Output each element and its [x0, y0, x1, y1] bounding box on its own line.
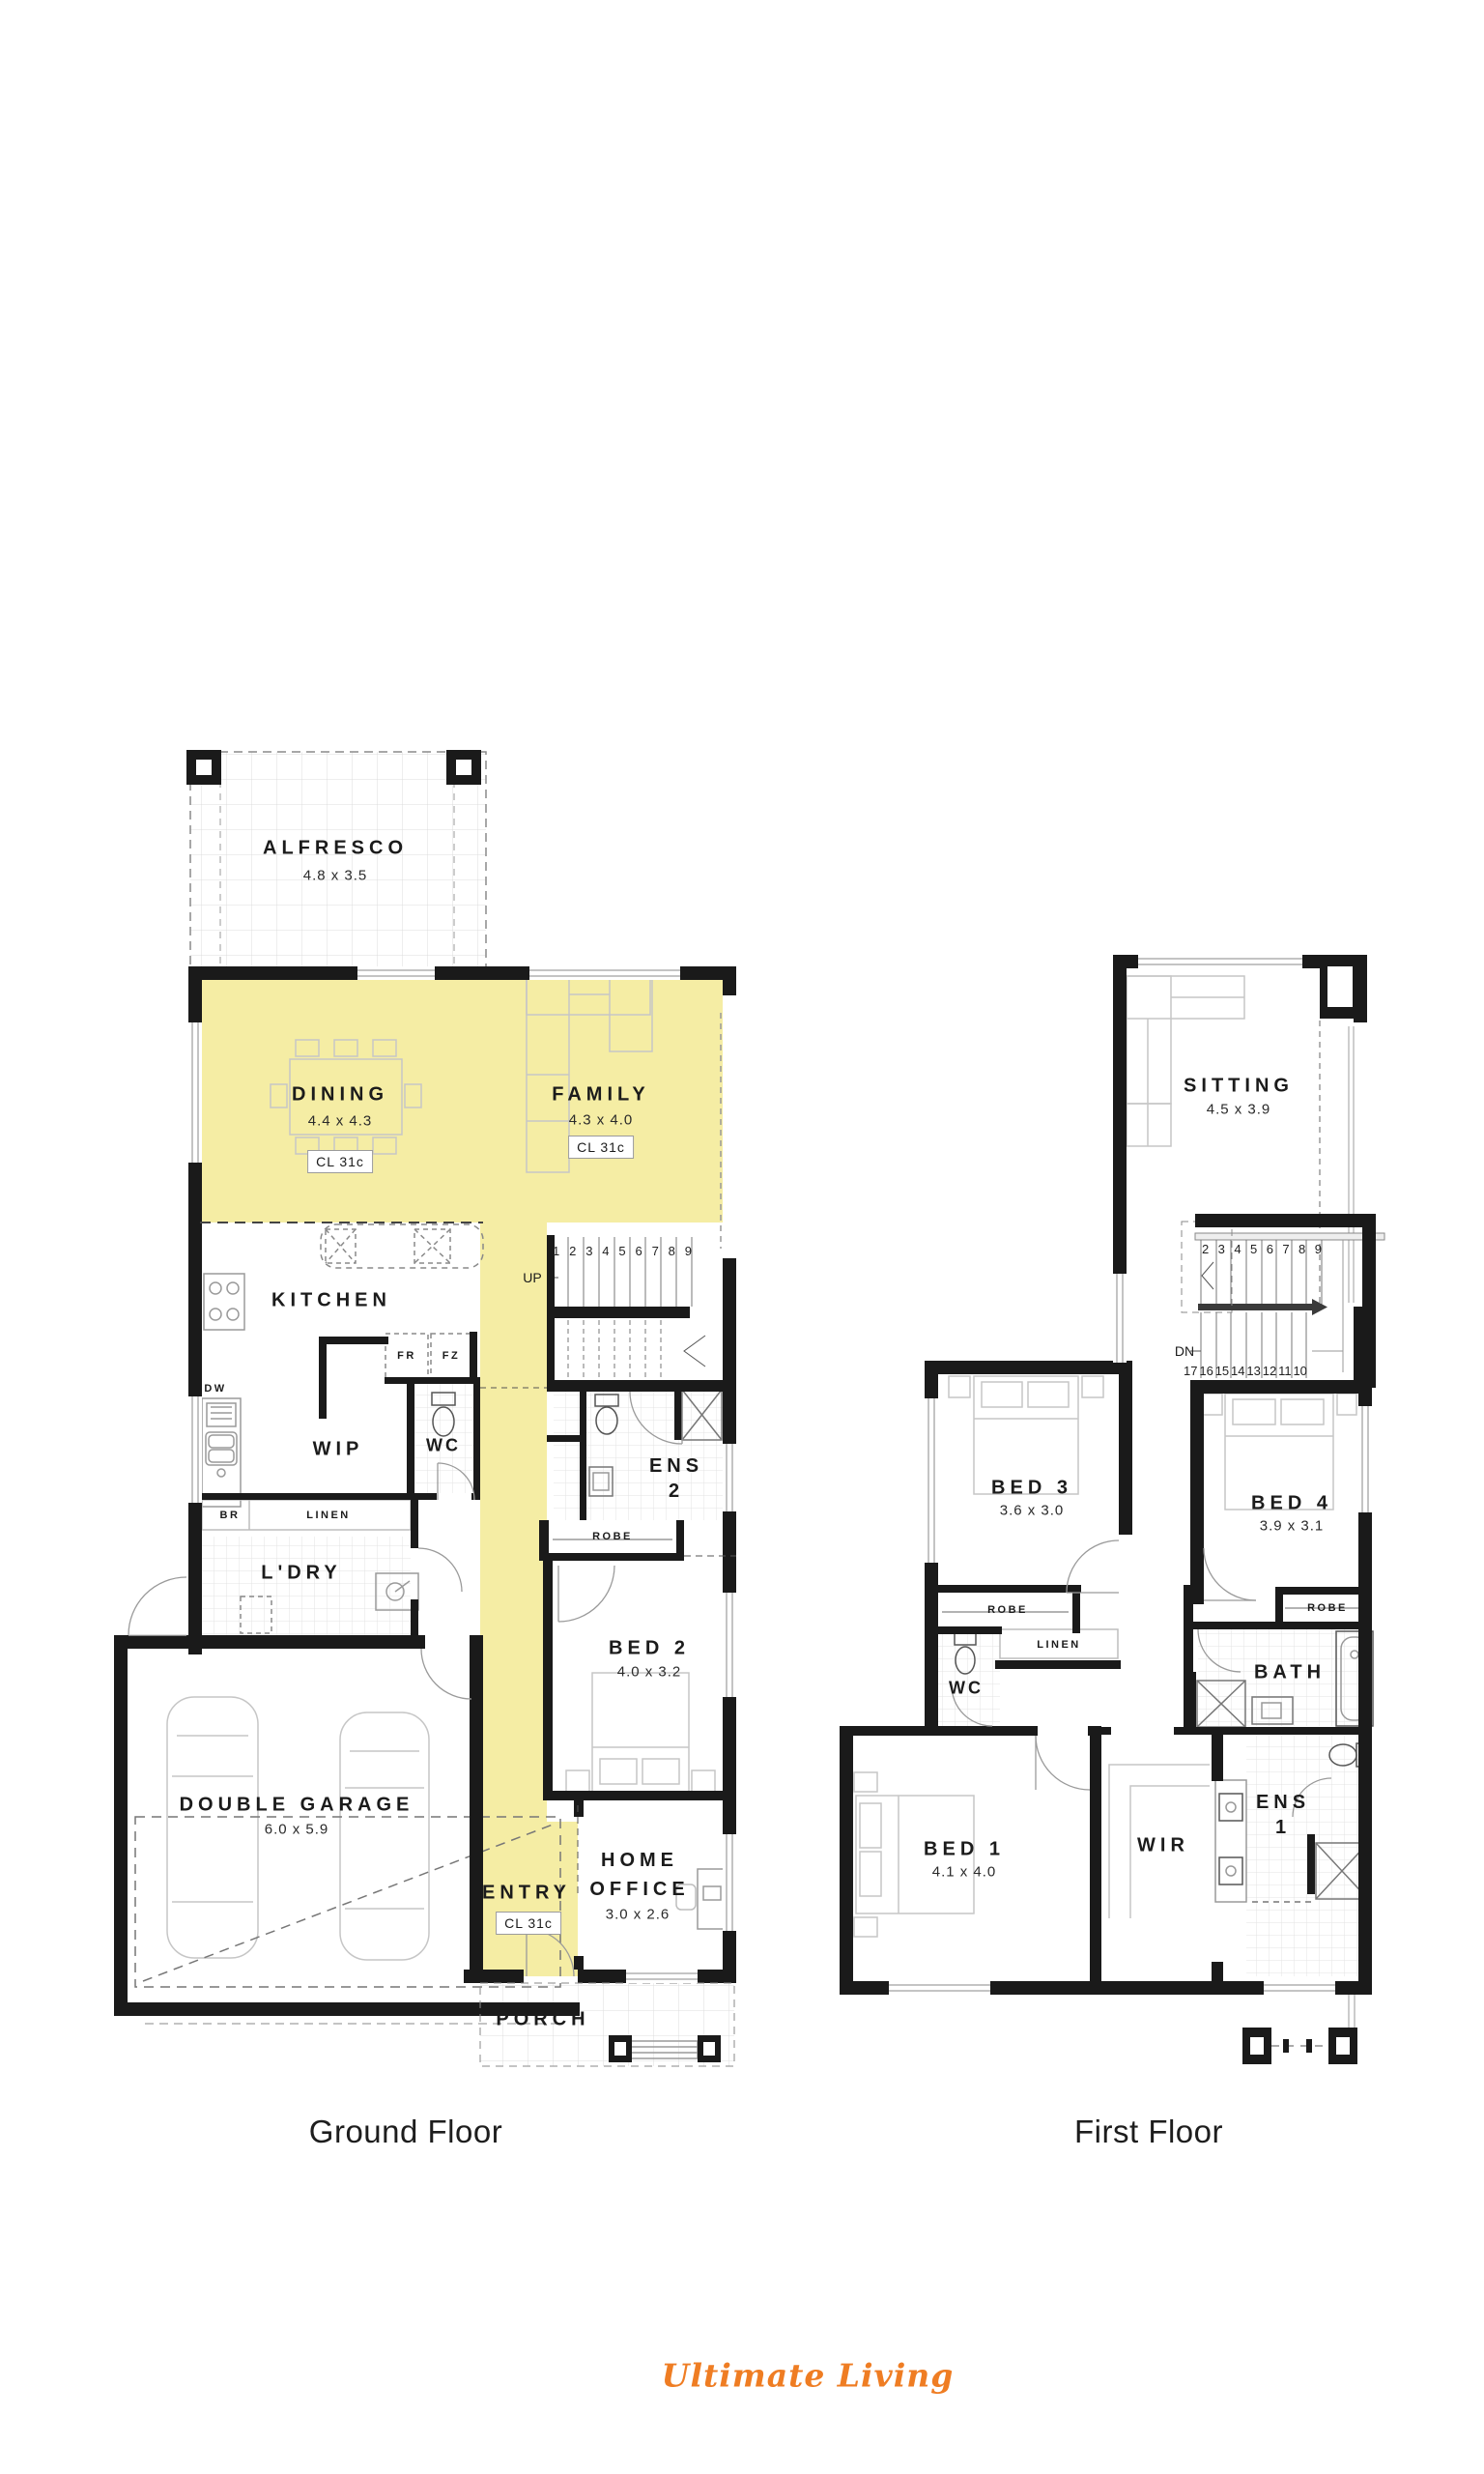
room-label-bed3: BED 3 [991, 1478, 1072, 1500]
room-dims-bed3: 3.6 x 3.0 [1000, 1503, 1065, 1519]
stairs-numbers-first-top: 2 3 4 5 6 7 8 9 [1202, 1242, 1322, 1256]
floorplan-page: ALFRESCO 4.8 x 3.5 DINING 4.4 x 4.3 CL 3… [0, 0, 1484, 2474]
room-dims-bed2: 4.0 x 3.2 [617, 1664, 682, 1681]
room-dims-bed1: 4.1 x 4.0 [932, 1864, 997, 1881]
ceiling-badge-entry: CL 31c [496, 1912, 561, 1935]
stairs-up-label: UP [523, 1270, 541, 1285]
stairs-numbers-ground: 1 2 3 4 5 6 7 8 9 [553, 1244, 692, 1258]
room-label-ens1: ENS 1 [1256, 1790, 1310, 1840]
ceiling-badge-family: CL 31c [568, 1136, 634, 1159]
fixture-label-fr: FR [397, 1350, 416, 1362]
room-label-sitting: SITTING [1184, 1076, 1294, 1098]
fixture-label-linen-ground: LINEN [306, 1510, 351, 1521]
room-dims-bed4: 3.9 x 3.1 [1260, 1518, 1325, 1535]
room-label-wir: WIR [1137, 1835, 1189, 1857]
fixture-label-robe-bed4: ROBE [1307, 1602, 1348, 1614]
fixture-label-robe-bed3: ROBE [987, 1604, 1028, 1616]
room-label-family: FAMILY [552, 1084, 650, 1107]
room-dims-home-office: 3.0 x 2.6 [606, 1907, 671, 1923]
room-label-wip: WIP [313, 1439, 364, 1461]
room-label-wc-ground: WC [426, 1436, 461, 1456]
ground-floor-caption: Ground Floor [309, 2114, 502, 2150]
room-dims-family: 4.3 x 4.0 [569, 1112, 634, 1129]
fixture-label-br: BR [220, 1510, 241, 1521]
ceiling-badge-dining: CL 31c [307, 1150, 373, 1173]
fixture-label-dw: DW [204, 1383, 226, 1395]
room-dims-garage: 6.0 x 5.9 [265, 1822, 329, 1838]
room-label-home-office: HOME OFFICE [553, 1846, 727, 1904]
fixture-label-fz: FZ [442, 1350, 460, 1362]
room-label-kitchen: KITCHEN [271, 1290, 391, 1312]
room-label-bath: BATH [1254, 1662, 1326, 1684]
room-label-porch: PORCH [496, 2009, 589, 2031]
ultimate-living-logo: Ultimate Living [662, 2357, 955, 2395]
room-label-alfresco: ALFRESCO [263, 838, 408, 860]
room-label-bed1: BED 1 [924, 1839, 1005, 1861]
room-label-wc-first: WC [949, 1679, 984, 1699]
stairs-numbers-first-bottom: 17 16 15 14 13 12 11 10 [1184, 1364, 1307, 1378]
room-label-bed2: BED 2 [609, 1638, 690, 1660]
room-label-garage: DOUBLE GARAGE [180, 1795, 414, 1817]
room-label-dining: DINING [292, 1084, 388, 1107]
fixture-label-robe-ens2: ROBE [592, 1531, 633, 1542]
first-floor-caption: First Floor [1074, 2114, 1223, 2150]
floorplan-linework [0, 0, 1484, 2474]
room-dims-dining: 4.4 x 4.3 [308, 1113, 373, 1130]
stairs-dn-label: DN [1175, 1343, 1194, 1359]
room-dims-sitting: 4.5 x 3.9 [1207, 1102, 1271, 1118]
room-label-bed4: BED 4 [1251, 1493, 1332, 1515]
room-label-ens2: ENS 2 [649, 1453, 703, 1504]
room-label-ldry: L'DRY [261, 1563, 341, 1585]
room-dims-alfresco: 4.8 x 3.5 [303, 868, 368, 884]
fixture-label-linen-first: LINEN [1037, 1639, 1081, 1651]
